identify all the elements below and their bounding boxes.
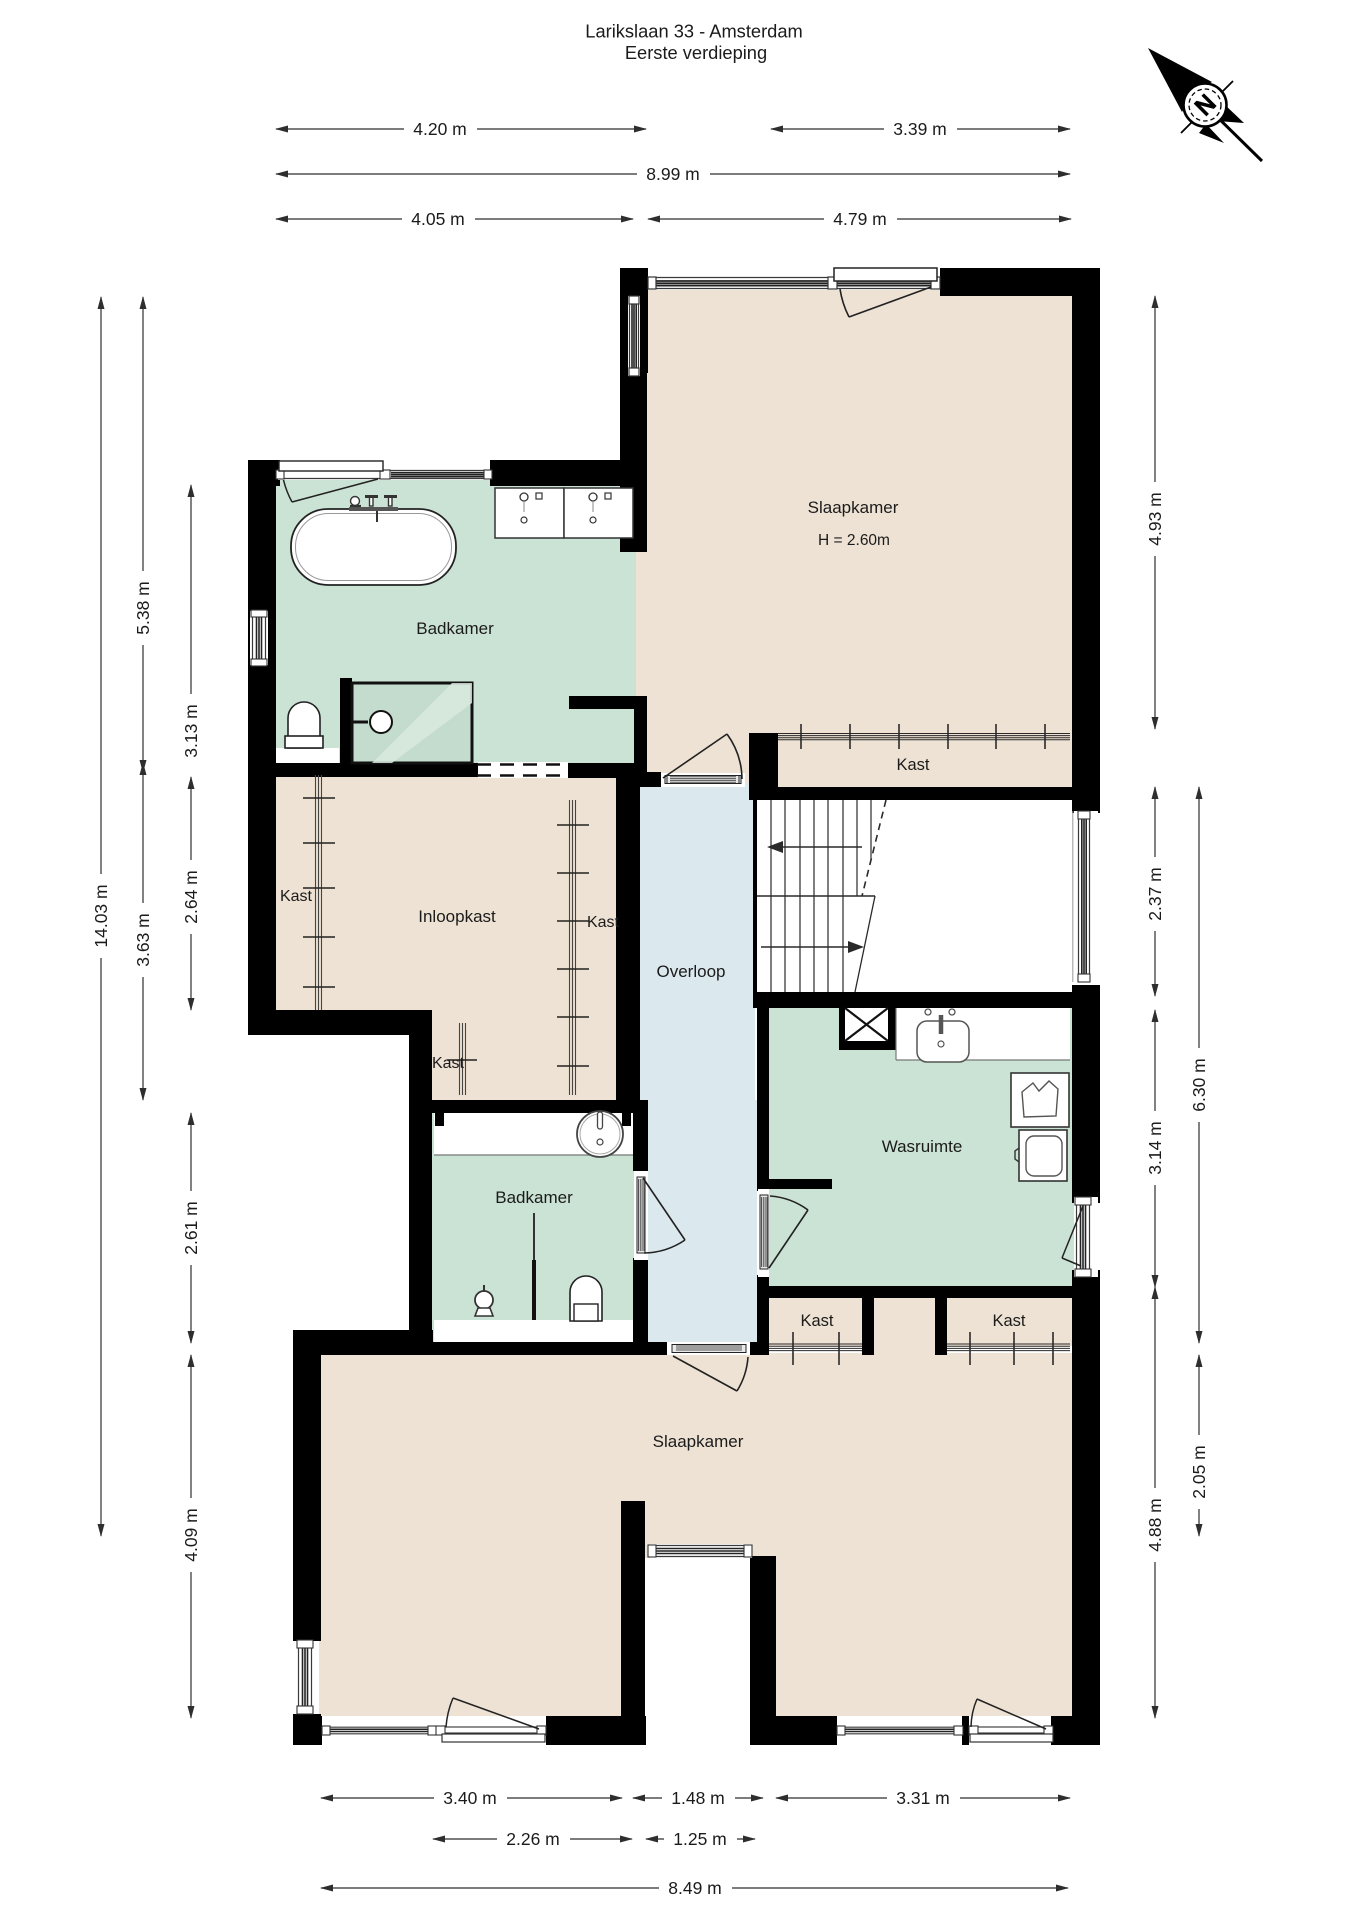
svg-text:3.31 m: 3.31 m [896, 1788, 950, 1808]
svg-text:Slaapkamer: Slaapkamer [653, 1432, 744, 1451]
svg-text:4.20 m: 4.20 m [413, 119, 467, 139]
svg-text:Wasruimte: Wasruimte [882, 1137, 963, 1156]
svg-text:3.63 m: 3.63 m [133, 913, 153, 967]
svg-text:5.38 m: 5.38 m [133, 581, 153, 635]
svg-text:Inloopkast: Inloopkast [418, 907, 496, 926]
svg-text:1.25 m: 1.25 m [673, 1829, 727, 1849]
svg-text:Badkamer: Badkamer [416, 619, 494, 638]
svg-text:4.88 m: 4.88 m [1145, 1498, 1165, 1552]
svg-text:Badkamer: Badkamer [495, 1188, 573, 1207]
svg-text:Kast: Kast [992, 1312, 1025, 1330]
svg-text:Larikslaan 33 - Amsterdam: Larikslaan 33 - Amsterdam [585, 21, 802, 42]
svg-text:H = 2.60m: H = 2.60m [818, 532, 890, 549]
svg-text:1.48 m: 1.48 m [671, 1788, 725, 1808]
svg-text:Slaapkamer: Slaapkamer [808, 498, 899, 517]
svg-text:2.64 m: 2.64 m [181, 870, 201, 924]
svg-text:4.05 m: 4.05 m [411, 209, 465, 229]
svg-text:4.79 m: 4.79 m [833, 209, 887, 229]
svg-text:3.13 m: 3.13 m [181, 704, 201, 758]
svg-text:2.37 m: 2.37 m [1145, 867, 1165, 921]
svg-text:6.30 m: 6.30 m [1189, 1058, 1209, 1112]
svg-text:4.93 m: 4.93 m [1145, 492, 1165, 546]
svg-text:3.14 m: 3.14 m [1145, 1121, 1165, 1175]
svg-text:Kast: Kast [432, 1055, 465, 1072]
svg-text:2.05 m: 2.05 m [1189, 1445, 1209, 1499]
svg-text:2.61 m: 2.61 m [181, 1201, 201, 1255]
svg-text:4.09 m: 4.09 m [181, 1508, 201, 1562]
svg-text:8.99 m: 8.99 m [646, 164, 700, 184]
svg-text:Kast: Kast [587, 914, 620, 931]
svg-text:Eerste verdieping: Eerste verdieping [625, 42, 767, 63]
svg-text:3.39 m: 3.39 m [893, 119, 947, 139]
svg-text:Kast: Kast [800, 1312, 833, 1330]
svg-text:Kast: Kast [280, 888, 313, 905]
svg-text:14.03 m: 14.03 m [91, 884, 111, 947]
svg-text:2.26 m: 2.26 m [506, 1829, 560, 1849]
svg-text:8.49 m: 8.49 m [668, 1878, 722, 1898]
svg-text:Overloop: Overloop [657, 962, 726, 981]
svg-text:Kast: Kast [896, 756, 929, 774]
svg-text:3.40 m: 3.40 m [443, 1788, 497, 1808]
